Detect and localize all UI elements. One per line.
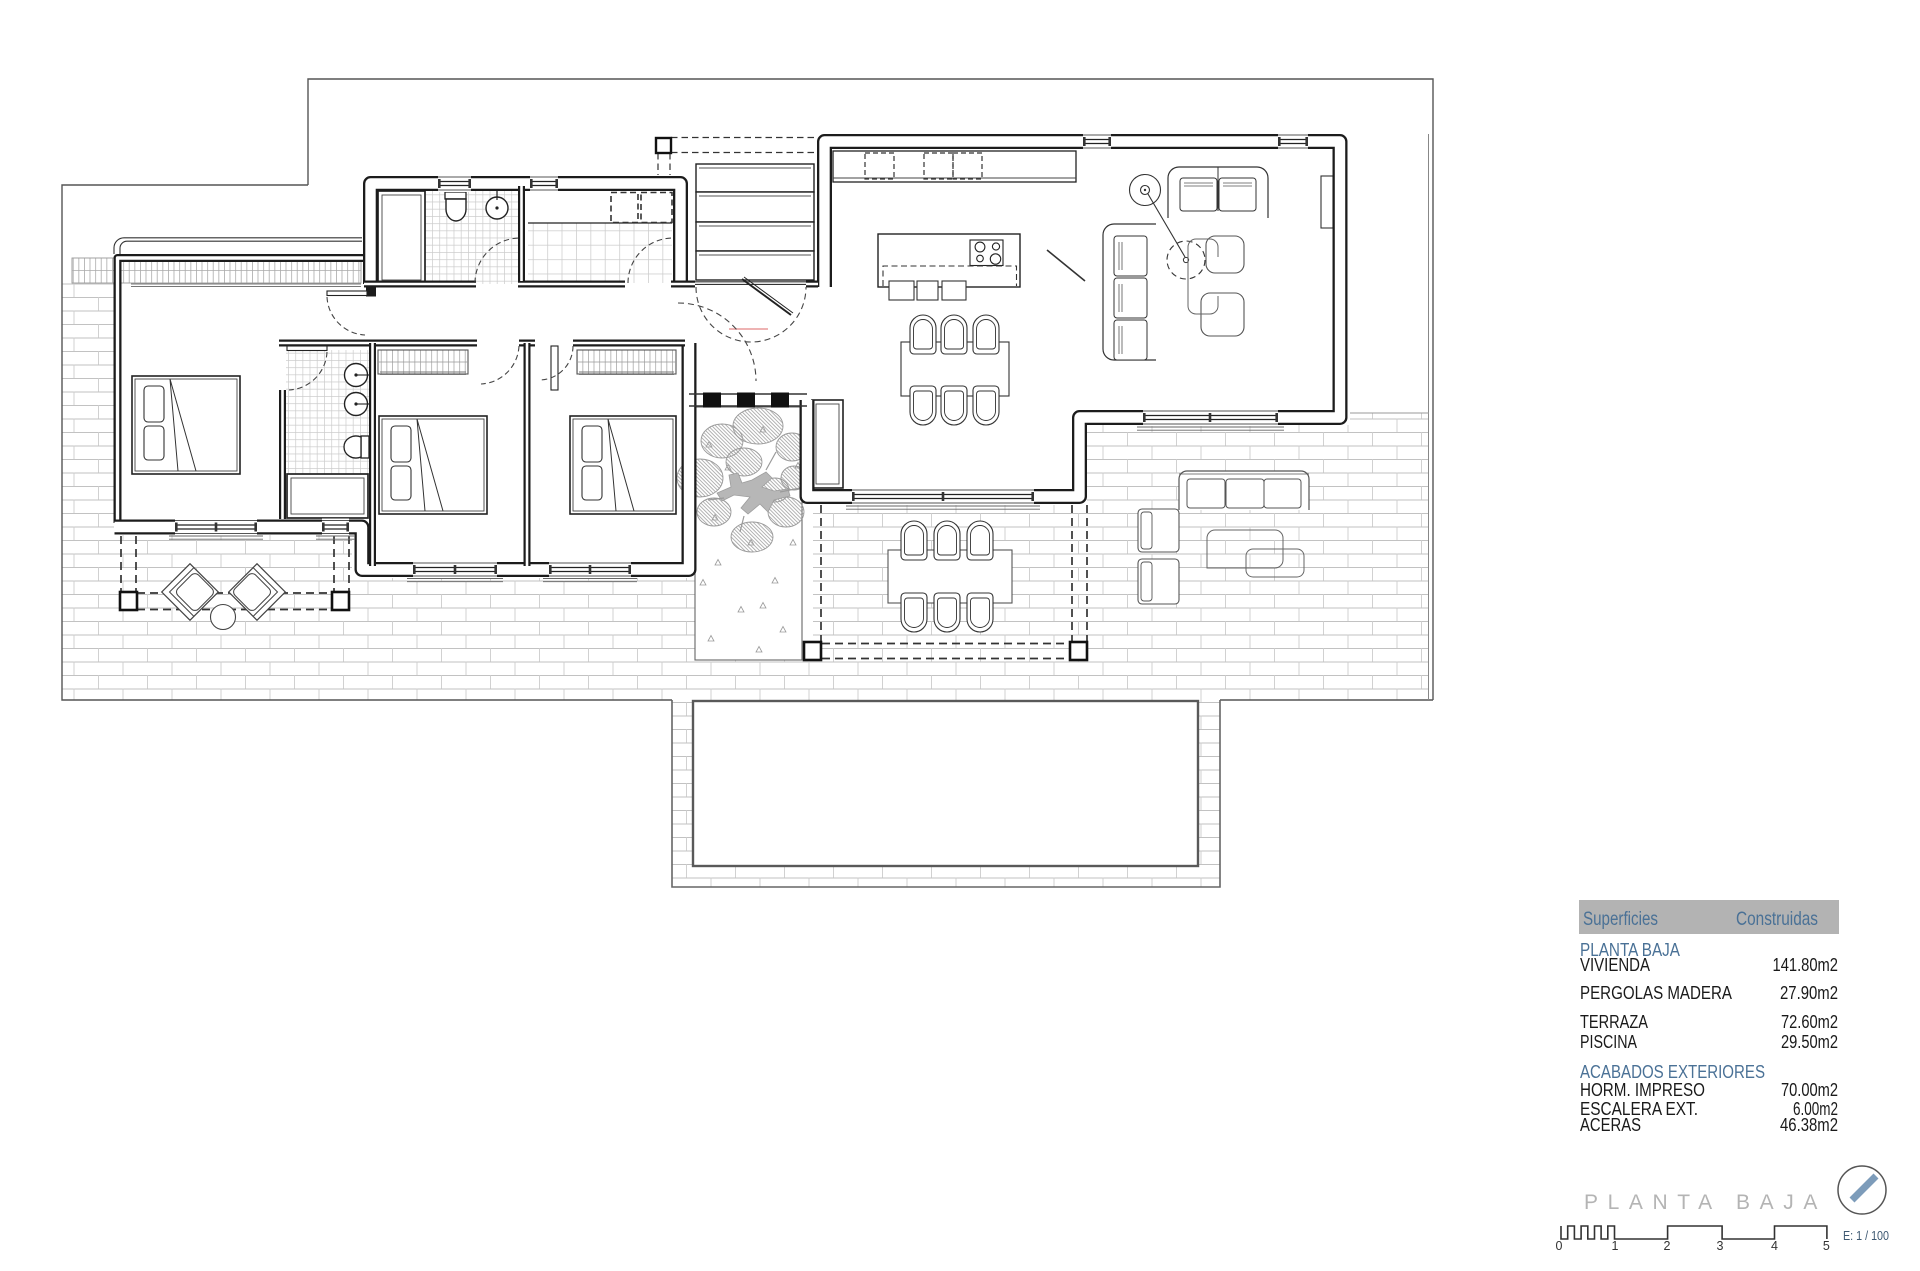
svg-text:141.80m2: 141.80m2 xyxy=(1773,955,1839,975)
svg-text:72.60m2: 72.60m2 xyxy=(1781,1012,1838,1032)
svg-text:VIVIENDA: VIVIENDA xyxy=(1580,955,1650,975)
svg-text:0: 0 xyxy=(1556,1239,1563,1253)
svg-text:HORM. IMPRESO: HORM. IMPRESO xyxy=(1580,1080,1705,1100)
svg-text:2: 2 xyxy=(1664,1239,1671,1253)
svg-text:PLANTA BAJA: PLANTA BAJA xyxy=(1584,1191,1827,1214)
svg-text:E: 1 / 100: E: 1 / 100 xyxy=(1843,1228,1889,1243)
svg-text:29.50m2: 29.50m2 xyxy=(1781,1032,1838,1052)
svg-text:ACABADOS EXTERIORES: ACABADOS EXTERIORES xyxy=(1580,1062,1765,1082)
svg-text:3: 3 xyxy=(1717,1239,1724,1253)
svg-text:5: 5 xyxy=(1823,1239,1830,1253)
svg-text:ACERAS: ACERAS xyxy=(1580,1115,1641,1135)
svg-text:27.90m2: 27.90m2 xyxy=(1780,983,1838,1003)
svg-text:TERRAZA: TERRAZA xyxy=(1580,1012,1648,1032)
svg-text:Superficies: Superficies xyxy=(1583,908,1658,930)
svg-text:PERGOLAS MADERA: PERGOLAS MADERA xyxy=(1580,983,1732,1003)
svg-text:PISCINA: PISCINA xyxy=(1580,1032,1637,1052)
svg-text:1: 1 xyxy=(1612,1239,1619,1253)
svg-text:46.38m2: 46.38m2 xyxy=(1780,1115,1838,1135)
svg-text:Construidas: Construidas xyxy=(1736,908,1818,930)
svg-text:70.00m2: 70.00m2 xyxy=(1781,1080,1838,1100)
svg-text:4: 4 xyxy=(1771,1239,1778,1253)
